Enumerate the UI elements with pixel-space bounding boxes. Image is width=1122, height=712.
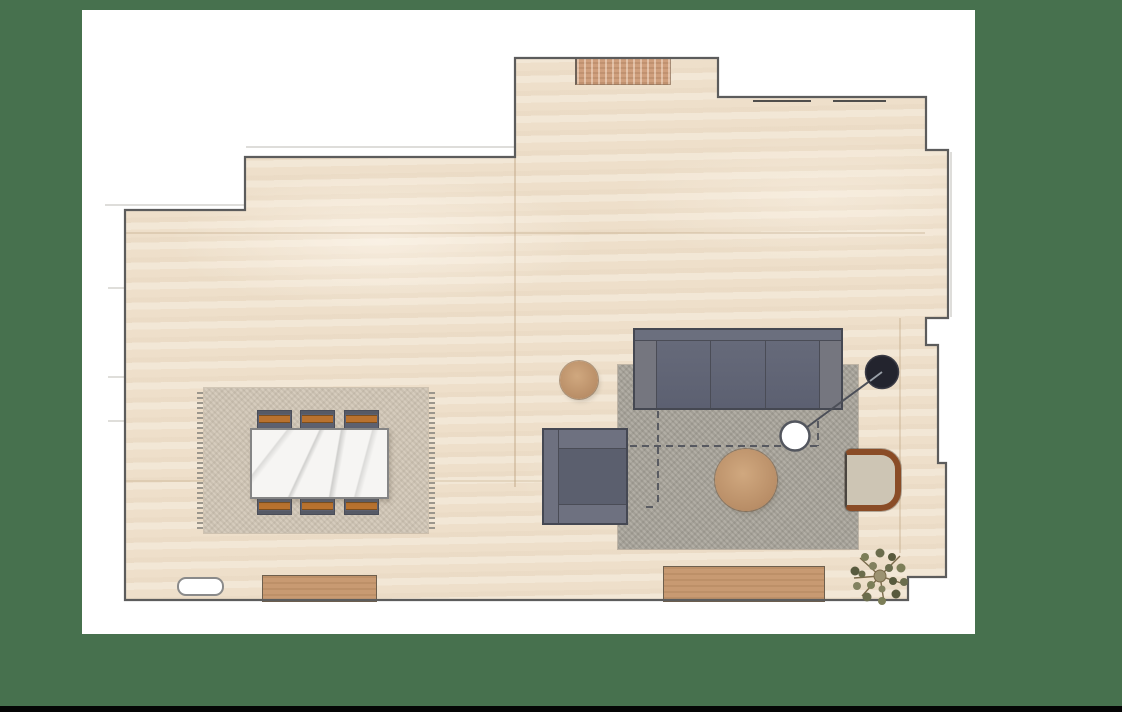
floor-seam (514, 157, 516, 487)
floor-seam (125, 232, 925, 234)
sofa[interactable] (633, 328, 843, 410)
chair-cushion (259, 502, 290, 510)
sofa-arm-right (819, 341, 841, 408)
dining-table[interactable] (250, 428, 389, 499)
recessed-floor-fixture[interactable] (177, 577, 224, 596)
potted-plant[interactable] (848, 544, 912, 608)
chair-back-rail (258, 511, 291, 514)
floor-seam (899, 318, 901, 553)
armchair-arm (559, 504, 626, 523)
entry-doormat[interactable] (575, 58, 671, 85)
armchair-arm (559, 430, 626, 449)
accent-chair[interactable] (845, 449, 901, 511)
armchair-seat (559, 449, 626, 504)
chair-back-rail (258, 411, 291, 414)
media-console[interactable] (663, 566, 825, 602)
floor-plan-stage (0, 0, 1122, 712)
sofa-seat (765, 341, 819, 408)
chair-back-rail (301, 511, 334, 514)
chair-cushion (302, 415, 333, 423)
sofa-seat (657, 341, 710, 408)
chair-cushion (346, 502, 377, 510)
coffee-table[interactable] (715, 449, 777, 511)
chair-back-rail (345, 511, 378, 514)
sofa-arm-left (635, 341, 657, 408)
bottom-bar (0, 706, 1122, 712)
chair-cushion (302, 502, 333, 510)
sideboard[interactable] (262, 575, 377, 602)
chair-cushion (346, 415, 377, 423)
chair-cushion (259, 415, 290, 423)
side-table[interactable] (560, 361, 598, 399)
sofa-back (635, 330, 841, 341)
armchair-back (544, 430, 559, 523)
armchair[interactable] (542, 428, 628, 525)
sofa-seat (710, 341, 764, 408)
chair-back-rail (345, 411, 378, 414)
chair-back-rail (301, 411, 334, 414)
